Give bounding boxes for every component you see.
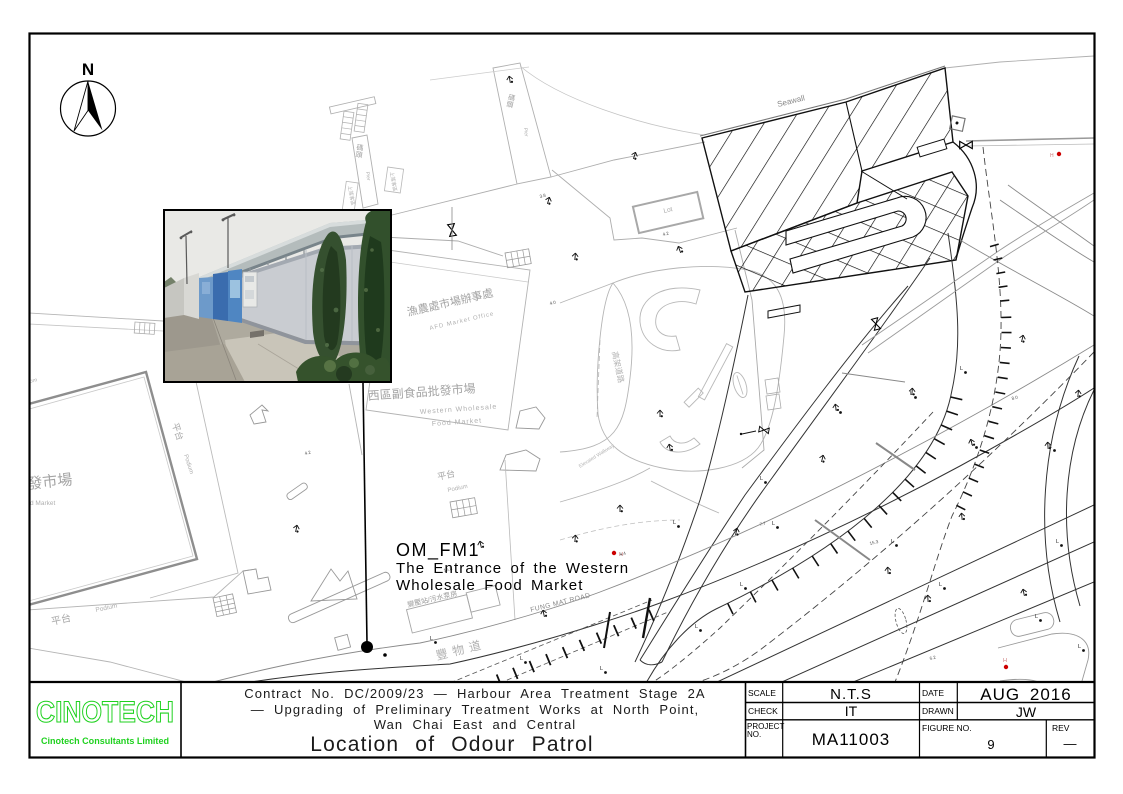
svg-text:Wan Chai East and Central: Wan Chai East and Central bbox=[374, 717, 577, 732]
svg-text:d Market: d Market bbox=[30, 500, 55, 507]
svg-text:Location of Odour Patrol: Location of Odour Patrol bbox=[310, 733, 593, 756]
svg-text:OM_FM1: OM_FM1 bbox=[396, 540, 480, 561]
svg-text:L: L bbox=[910, 391, 913, 397]
svg-text:IT: IT bbox=[845, 703, 858, 719]
svg-text:H: H bbox=[1003, 658, 1007, 664]
svg-text:9: 9 bbox=[987, 737, 994, 752]
svg-text:Pier: Pier bbox=[522, 128, 529, 138]
svg-text:REV: REV bbox=[1052, 723, 1070, 733]
svg-text:DRAWN: DRAWN bbox=[922, 706, 954, 716]
svg-text:Contract No. DC/2009/23 — Harb: Contract No. DC/2009/23 — Harbour Area T… bbox=[244, 686, 705, 701]
svg-text:— Upgrading of Preliminary Tre: — Upgrading of Preliminary Treatment Wor… bbox=[251, 702, 700, 717]
svg-text:L: L bbox=[1035, 614, 1038, 620]
svg-text:N: N bbox=[82, 60, 94, 79]
svg-text:L: L bbox=[939, 582, 942, 588]
svg-text:L: L bbox=[971, 441, 974, 447]
svg-text:AUG 2016: AUG 2016 bbox=[980, 685, 1071, 704]
svg-text:L: L bbox=[695, 624, 698, 630]
svg-text:L: L bbox=[835, 406, 838, 412]
svg-text:FIGURE NO.: FIGURE NO. bbox=[922, 723, 972, 733]
svg-text:L: L bbox=[740, 582, 743, 588]
svg-text:Cinotech Consultants Limited: Cinotech Consultants Limited bbox=[41, 736, 169, 746]
svg-text:L: L bbox=[772, 521, 775, 527]
svg-text:CINOTECH: CINOTECH bbox=[36, 696, 174, 729]
svg-text:N.T.S: N.T.S bbox=[830, 686, 872, 703]
svg-text:SCALE: SCALE bbox=[748, 688, 776, 698]
svg-text:L: L bbox=[891, 539, 894, 545]
svg-text:L: L bbox=[1049, 444, 1052, 450]
svg-text:NO.: NO. bbox=[747, 730, 761, 739]
svg-text:H: H bbox=[1050, 153, 1054, 159]
svg-text:Wholesale Food Market: Wholesale Food Market bbox=[396, 577, 584, 594]
svg-text:MA11003: MA11003 bbox=[812, 730, 891, 749]
svg-text:L: L bbox=[760, 476, 763, 482]
svg-text:L: L bbox=[520, 656, 523, 662]
svg-text:—: — bbox=[1064, 736, 1077, 751]
svg-text:Pier: Pier bbox=[364, 171, 371, 181]
svg-text:DATE: DATE bbox=[922, 688, 944, 698]
svg-text:CHECK: CHECK bbox=[748, 706, 778, 716]
svg-text:The Entrance of the Western: The Entrance of the Western bbox=[396, 560, 629, 577]
svg-text:L: L bbox=[430, 636, 433, 642]
svg-text:L: L bbox=[960, 366, 963, 372]
svg-text:L: L bbox=[1056, 539, 1059, 545]
svg-text:L: L bbox=[1078, 644, 1081, 650]
svg-text:L: L bbox=[600, 666, 603, 672]
svg-text:JW: JW bbox=[1016, 704, 1037, 720]
svg-text:L: L bbox=[673, 520, 676, 526]
